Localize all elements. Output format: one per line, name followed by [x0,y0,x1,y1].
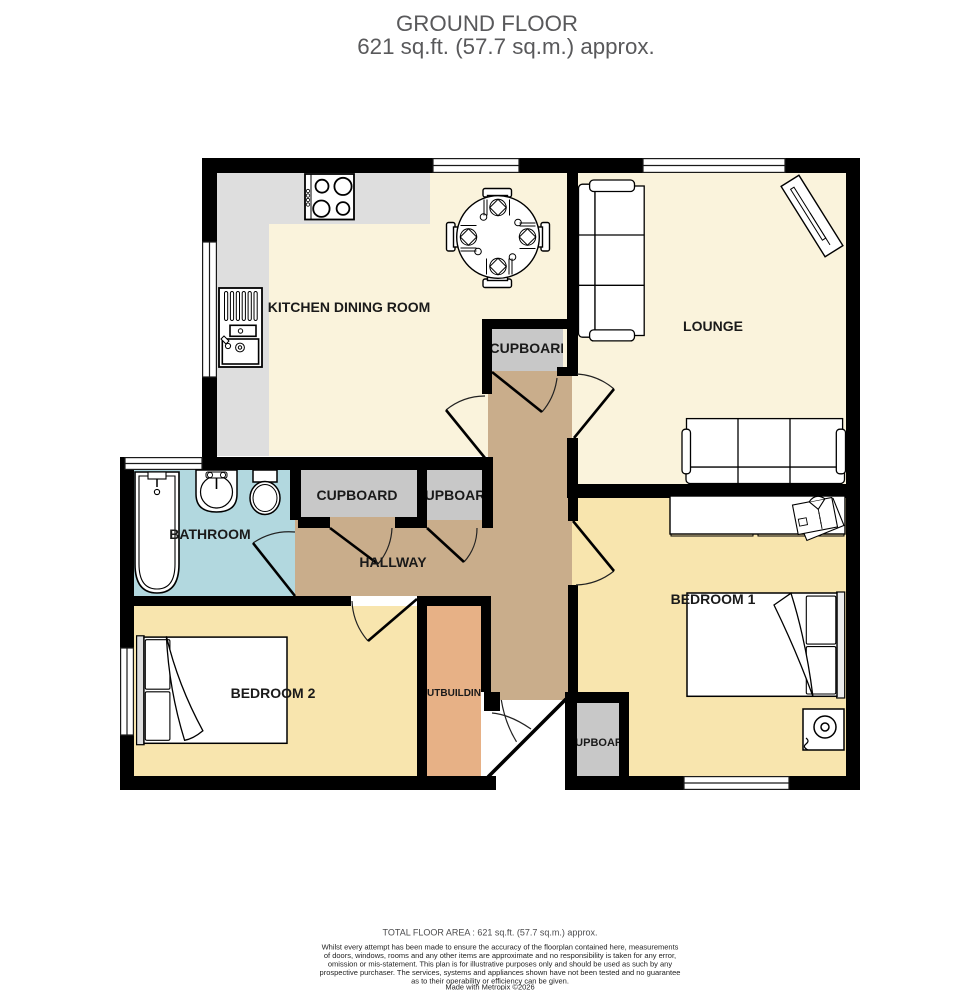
svg-text:Made with Metropix ©2026: Made with Metropix ©2026 [445,983,534,990]
svg-text:621 sq.ft. (57.7 sq.m.) approx: 621 sq.ft. (57.7 sq.m.) approx. [357,34,654,59]
svg-text:GROUND FLOOR: GROUND FLOOR [396,11,578,36]
svg-text:TOTAL FLOOR AREA : 621 sq.ft.: TOTAL FLOOR AREA : 621 sq.ft. (57.7 sq.m… [383,928,598,938]
